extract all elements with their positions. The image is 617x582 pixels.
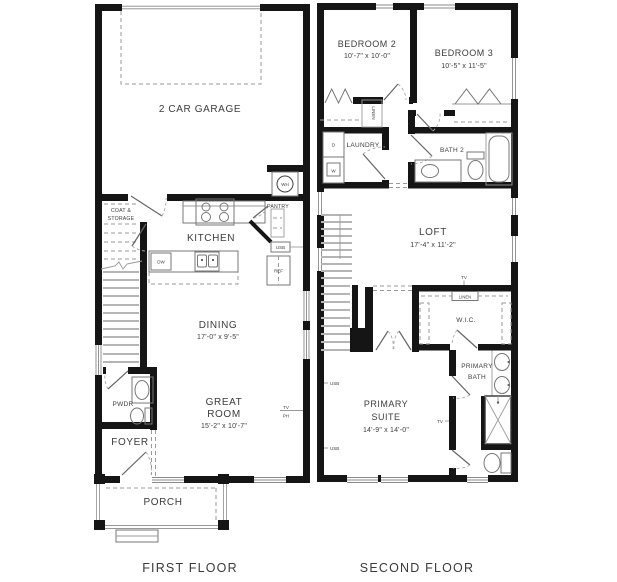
porch-label: PORCH [143,497,182,508]
front-door [120,452,152,484]
foyer-opening [149,430,158,476]
bedroom2-label: BEDROOM 2 [338,39,397,49]
primary-suite-double-door [376,331,411,350]
porch-column [94,520,105,530]
bifold-door-icon [455,89,501,104]
toilet-icon [484,453,511,473]
kitchen-label: KITCHEN [187,233,235,244]
linen-closet-upper: LINEN [362,100,382,127]
tv-label: TV [283,405,289,410]
first-floor-plan: WH [94,3,311,575]
usb-label: USB [276,245,285,250]
great-room-dims: 15'-2" x 10'-7" [201,423,247,430]
refrigerator-label: REF [274,269,283,274]
bath2-vanity-sink-icon [415,160,461,182]
floorplan-drawing: WH [0,0,617,582]
double-vanity-sink-icon [495,354,510,394]
usb-annotation-lower: USB [324,446,339,451]
floorplan-page: WH [0,0,617,582]
usb-lower-label: USB [330,446,339,451]
bath2-room [407,133,512,185]
stairs-icon [101,204,142,362]
tv-loft-label: TV [461,275,467,280]
powder-room [105,366,153,424]
porch-column [94,474,105,484]
toilet-icon [467,152,484,180]
linen-upper-label: LINEN [371,106,376,119]
laundry-label: LAUNDRY [346,142,379,149]
water-heater-label: WH [281,182,289,187]
powder-label: PWDR [112,401,133,408]
great-room-label-2: ROOM [207,409,241,420]
tv-annotation-loft: TV [461,275,467,285]
refrigerator-icon: REF [267,256,290,285]
primary-bath-label-2: BATH [468,374,486,381]
second-floor-caption: SECOND FLOOR [360,561,474,575]
wic-label: W.I.C. [456,317,476,324]
tv-annotation-suite: TV [437,419,449,424]
foyer-label: FOYER [111,437,148,448]
coat-storage-label-2: STORAGE [108,216,135,222]
linen-lower-label: LINEN [459,295,471,300]
bedroom2-door [383,84,409,105]
dishwasher-label: DW [157,260,165,265]
tv-ph-annotation: TV PH [280,405,303,419]
bedroom3-dims: 10'-5" x 11'-5" [441,63,487,70]
porch-column [218,474,229,484]
loft-corridor-opening [373,286,412,291]
bedroom2-dims: 10'-7" x 10'-0" [344,53,390,60]
loft-label: LOFT [419,227,447,238]
garage-entry-door [131,196,166,216]
linen-closet-lower: LINEN [421,292,508,301]
loft-dims: 17'-4" x 11'-2" [410,242,456,249]
usb-upper-label: USB [330,381,339,386]
pantry-label: PANTRY [267,204,289,210]
usb-annotation-upper: USB [324,381,339,386]
ph-label: PH [283,414,289,419]
stairs-icon [321,215,352,350]
garage-door-opening [122,3,260,12]
laundry-room: D W [323,132,390,183]
coat-storage-label-1: COAT & [111,208,131,214]
porch-structure [94,474,229,542]
toilet-icon [131,408,153,424]
overhead-door-dashed-line [121,11,261,84]
sink-icon [132,377,153,403]
hall-opening-dashed [389,184,408,188]
second-floor-plan: LINEN D W LAUNDR [316,2,519,575]
bath2-label: BATH 2 [440,147,464,154]
bedroom3-label: BEDROOM 3 [435,48,494,58]
tv-suite-label: TV [437,419,443,424]
primary-suite-dims: 14'-9" x 14'-0" [363,427,409,434]
primary-suite-label-1: PRIMARY [364,399,408,409]
bedroom2-closet [320,89,360,120]
great-room-label-1: GREAT [206,397,243,408]
bedroom3-closet [452,89,511,122]
kitchen-island: DW [149,251,238,284]
porch-column [218,520,229,530]
dining-dims: 17'-0" x 9'-5" [197,334,239,341]
water-heater-icon: WH [272,172,298,196]
bathtub-icon [486,133,512,185]
porch-steps [116,530,158,542]
shower-icon [485,396,511,444]
dining-label: DINING [199,320,238,331]
primary-suite-label-2: SUITE [371,412,400,422]
primary-bath-label-1: PRIMARY [461,363,493,370]
wic-room [420,303,511,348]
pantry-angled-wall [250,221,271,242]
garage-label: 2 CAR GARAGE [159,104,241,115]
usb-outlet: USB [271,242,303,252]
first-floor-caption: FIRST FLOOR [142,561,238,575]
